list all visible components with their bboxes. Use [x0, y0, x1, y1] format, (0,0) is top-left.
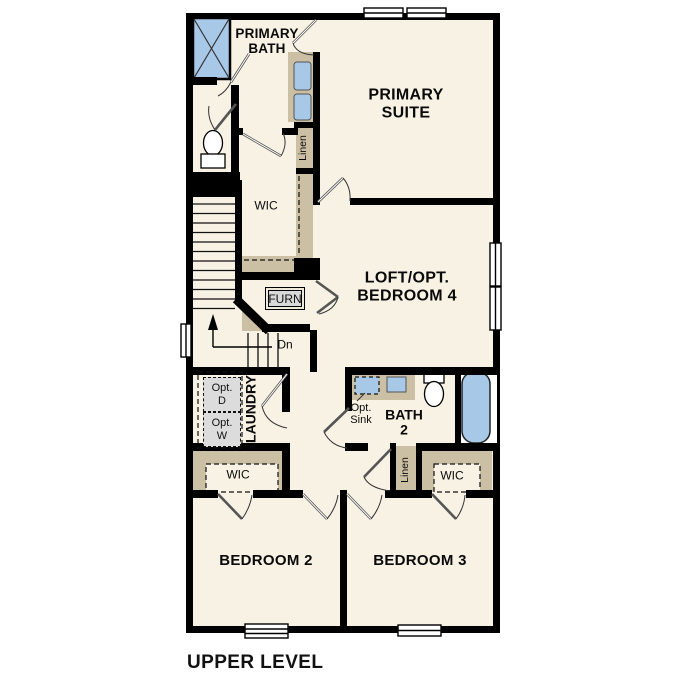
optional-dryer: Opt. D [203, 377, 241, 412]
primary-sink-2 [294, 94, 311, 120]
linen-hall-label: Linen [400, 457, 412, 483]
tub [462, 372, 490, 443]
floor-plan: PRIMARY BATH PRIMARY SUITE WIC Linen FUR… [0, 0, 687, 687]
bedroom2-label: BEDROOM 2 [219, 553, 313, 570]
optional-sink [355, 377, 379, 394]
wic-bedroom3-label: WIC [440, 469, 463, 482]
opt-sink-label: Opt. Sink [350, 402, 371, 426]
stairs-down-label: Dn [277, 338, 292, 351]
laundry-label: LAUNDRY [243, 375, 258, 443]
bath2-label: BATH 2 [385, 408, 423, 439]
toilet-primary [201, 131, 225, 169]
optional-dryer-label: Opt. D [212, 382, 233, 407]
primary-suite-label: PRIMARY SUITE [368, 86, 443, 121]
wic-bottom-shelf [242, 256, 296, 272]
linen-upper-label: Linen [298, 135, 310, 161]
bath2-sink [387, 377, 406, 392]
optional-washer: Opt. W [203, 412, 241, 447]
wic-bedroom2-label: WIC [226, 468, 249, 481]
wic-primary-label: WIC [254, 199, 277, 212]
window-bedroom2 [245, 624, 288, 638]
furnace-label: FURN [268, 292, 301, 306]
loft-label: LOFT/OPT. BEDROOM 4 [357, 269, 457, 304]
furnace-closet: FURN [265, 287, 305, 310]
bedroom3-label: BEDROOM 3 [373, 553, 467, 570]
primary-sink-1 [294, 62, 311, 90]
primary-bath-label: PRIMARY BATH [235, 27, 298, 57]
optional-washer-label: Opt. W [212, 417, 233, 442]
floor-plan-drawing [0, 0, 687, 687]
toilet-bath2 [424, 372, 444, 407]
plan-title: UPPER LEVEL [187, 652, 323, 674]
